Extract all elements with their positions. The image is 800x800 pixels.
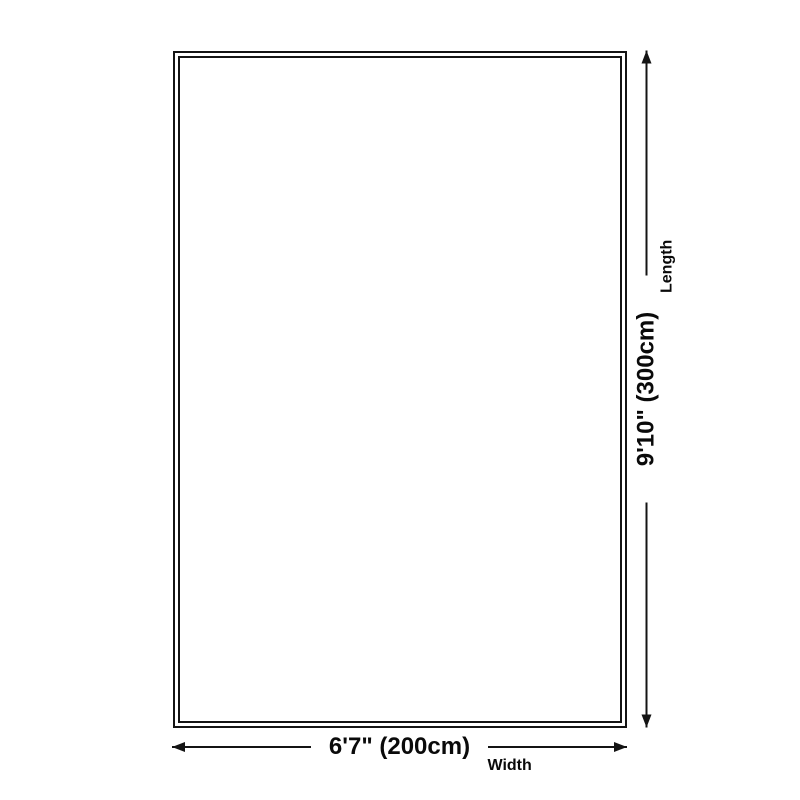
length-dimension: 9'10" (300cm) Length xyxy=(629,51,665,728)
width-label: Width xyxy=(488,756,532,775)
width-value: 6'7" (200cm) xyxy=(329,735,470,759)
length-arrow-line-top xyxy=(646,50,648,275)
arrowhead-right-icon xyxy=(614,742,627,752)
width-dimension: 6'7" (200cm) Width xyxy=(172,729,627,765)
width-arrow-line-right xyxy=(488,746,627,748)
arrowhead-down-icon xyxy=(642,715,652,728)
rug-size-diagram: 6'7" (200cm) Width 9'10" (300cm) Length xyxy=(0,0,800,800)
rug-inner-outline xyxy=(178,56,622,723)
rug-outline xyxy=(173,51,627,728)
length-value: 9'10" (300cm) xyxy=(635,312,659,467)
length-label: Length xyxy=(658,240,677,293)
arrowhead-up-icon xyxy=(642,50,652,63)
length-arrow-line-bottom xyxy=(646,502,648,727)
width-arrow-line-left xyxy=(172,746,311,748)
arrowhead-left-icon xyxy=(172,742,185,752)
